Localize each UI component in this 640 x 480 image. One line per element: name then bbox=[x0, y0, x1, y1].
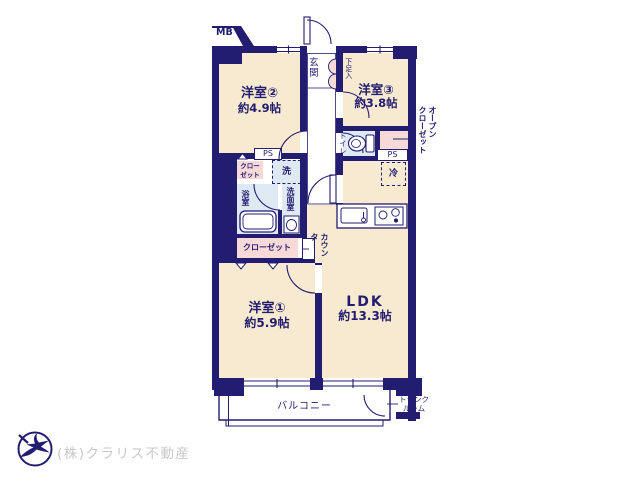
company-name: (株)クラリス不動産 bbox=[57, 442, 191, 462]
ldk-balcony-window-icon bbox=[323, 379, 383, 388]
bath-door-icon bbox=[254, 184, 280, 210]
company-logo-icon bbox=[12, 426, 58, 472]
bathtub-icon bbox=[240, 211, 276, 232]
mb-label: MB bbox=[216, 28, 233, 39]
room1-label: 洋室① 約5.9帖 bbox=[219, 302, 315, 331]
closet-lower-label: クローゼット bbox=[236, 238, 298, 258]
room3-name: 洋室③ bbox=[358, 83, 394, 97]
room2-size: 約4.9帖 bbox=[238, 102, 281, 115]
room2-top-window-icon bbox=[277, 46, 300, 54]
counter-label: カウン ター bbox=[309, 233, 329, 267]
ldk-label: LDK 約13.3帖 bbox=[322, 294, 408, 324]
room2-label: 洋室② 約4.9帖 bbox=[219, 87, 300, 115]
room3-label: 洋室③ 約3.8帖 bbox=[343, 83, 409, 111]
room1-name: 洋室① bbox=[248, 302, 285, 317]
washroom-label: 洗面室 bbox=[285, 187, 295, 219]
toilet-label: トイレ bbox=[338, 132, 347, 158]
room3-top-window-icon bbox=[367, 46, 393, 54]
closet-upper-label: クロー ゼット bbox=[237, 162, 263, 179]
kitchen-counter-icon bbox=[337, 204, 407, 228]
trunk-room-label: トランク ルーム bbox=[398, 395, 430, 414]
room3-size: 約3.8帖 bbox=[354, 97, 397, 110]
room2-name: 洋室② bbox=[241, 87, 278, 102]
kitchen-sink-icon bbox=[341, 208, 367, 223]
balcony-label: バルコニー bbox=[219, 398, 390, 416]
bathroom-label: 浴室 bbox=[240, 190, 250, 212]
washing-machine-label: 洗 bbox=[272, 160, 301, 184]
refrigerator-char: 冷 bbox=[389, 169, 398, 179]
toilet-icon bbox=[349, 135, 375, 152]
room2-door-icon bbox=[279, 131, 307, 159]
floorplan-page: PS PS bbox=[0, 0, 640, 480]
room1-size: 約5.9帖 bbox=[244, 317, 289, 331]
room1-balcony-window-icon bbox=[244, 379, 310, 388]
ldk-name: LDK bbox=[346, 294, 383, 310]
stove-icon bbox=[375, 207, 403, 225]
refrigerator-label: 冷 bbox=[381, 162, 406, 186]
room1-door-icon bbox=[287, 265, 315, 293]
open-closet-label: オープン クローゼット bbox=[417, 106, 437, 190]
ldk-size: 約13.3帖 bbox=[338, 310, 392, 324]
entrance-door-icon bbox=[304, 17, 331, 44]
washing-machine-char: 洗 bbox=[282, 167, 291, 177]
entrance-label: 玄関 bbox=[306, 57, 318, 91]
